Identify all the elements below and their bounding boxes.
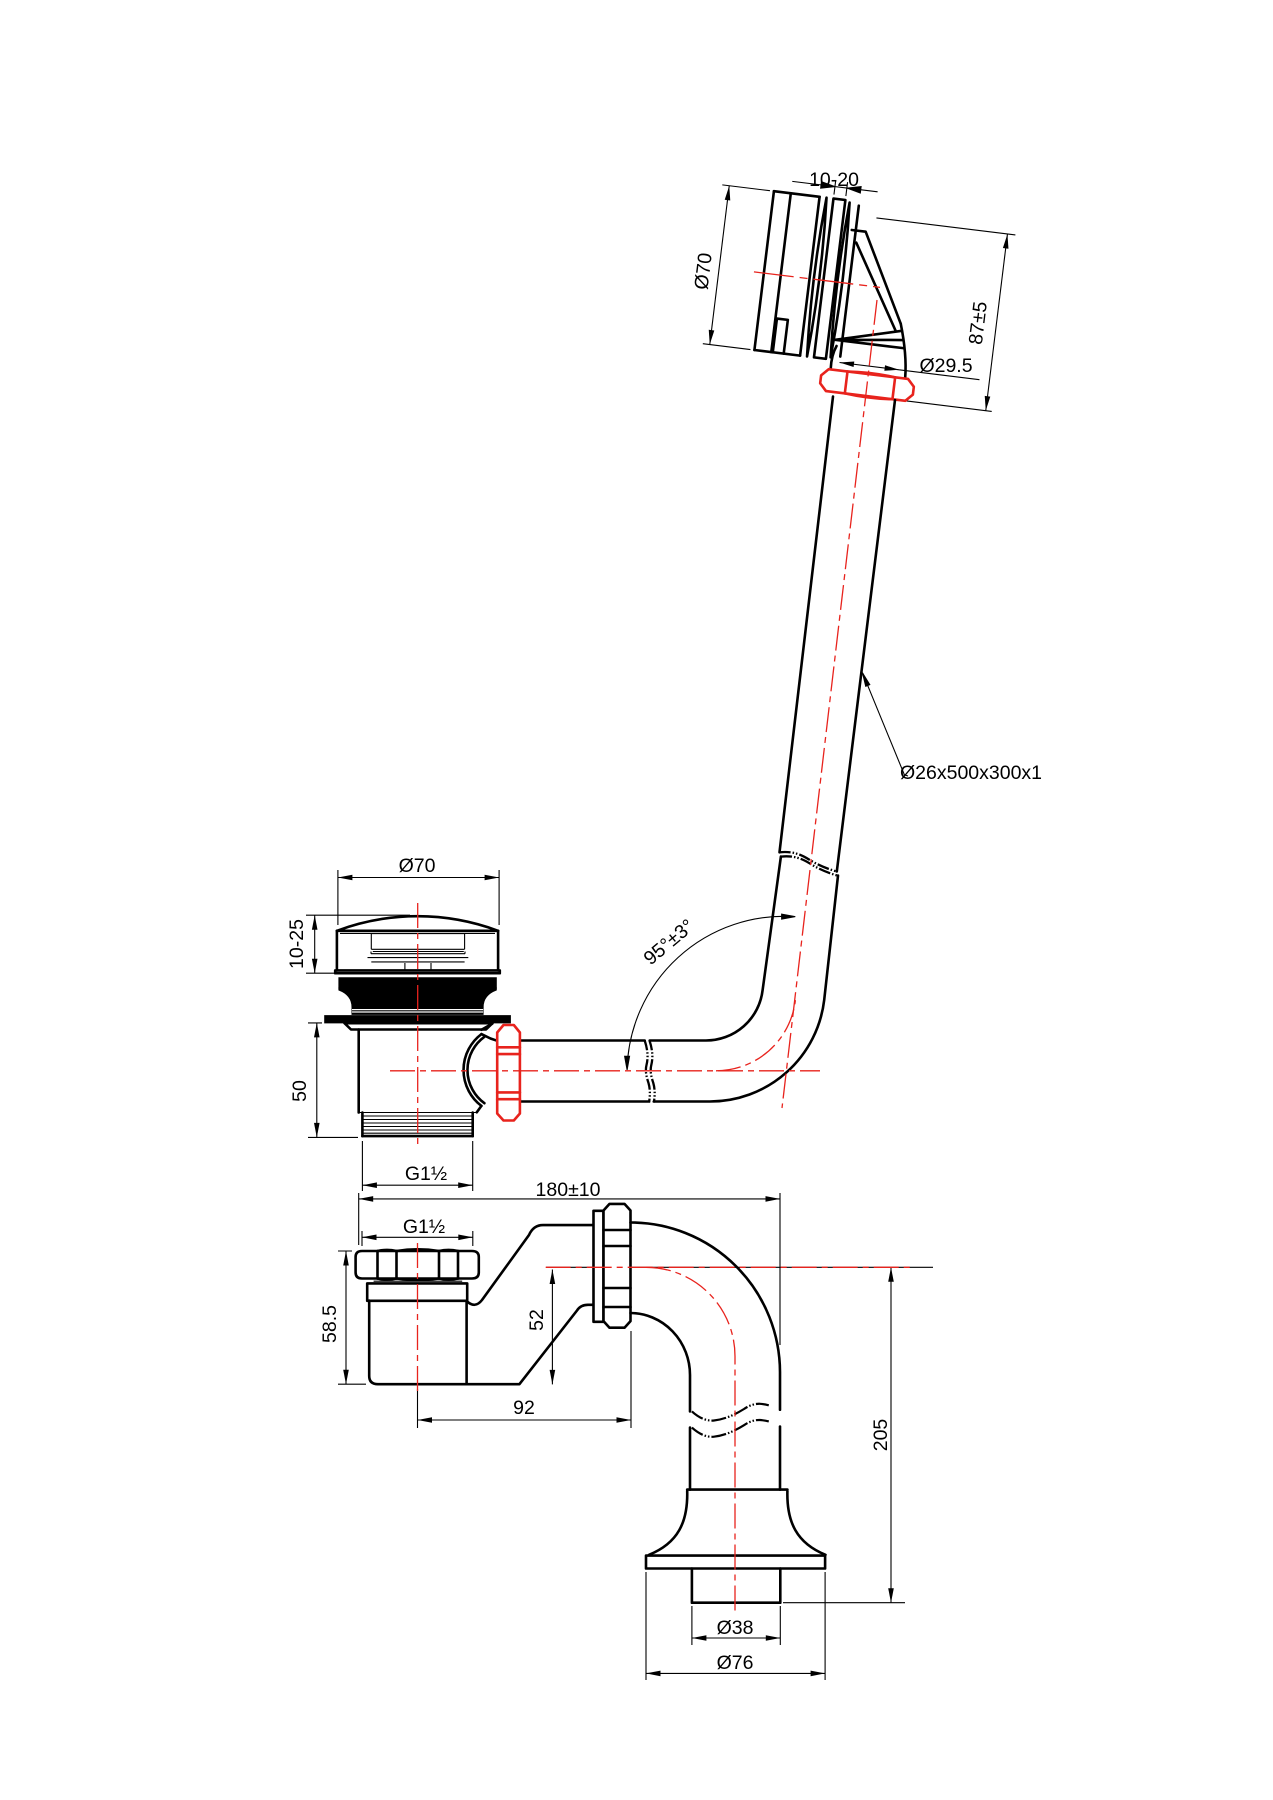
svg-text:G1½: G1½ [403,1216,445,1238]
svg-text:10-25: 10-25 [286,919,308,969]
svg-text:Ø70: Ø70 [690,251,716,290]
svg-text:G1½: G1½ [405,1163,447,1185]
svg-text:58.5: 58.5 [319,1305,341,1343]
svg-text:52: 52 [526,1309,548,1331]
svg-text:Ø76: Ø76 [717,1652,754,1674]
svg-text:50: 50 [289,1080,311,1102]
svg-text:Ø29.5: Ø29.5 [919,355,972,377]
svg-text:Ø70: Ø70 [399,855,436,877]
svg-text:95°±3°: 95°±3° [640,915,699,970]
svg-text:92: 92 [513,1397,535,1419]
svg-text:Ø26x500x300x1: Ø26x500x300x1 [900,762,1042,784]
svg-text:10-20: 10-20 [809,169,859,191]
svg-text:87±5: 87±5 [965,300,992,346]
svg-text:180±10: 180±10 [536,1179,601,1201]
svg-text:Ø38: Ø38 [717,1617,754,1639]
svg-text:205: 205 [870,1419,892,1452]
